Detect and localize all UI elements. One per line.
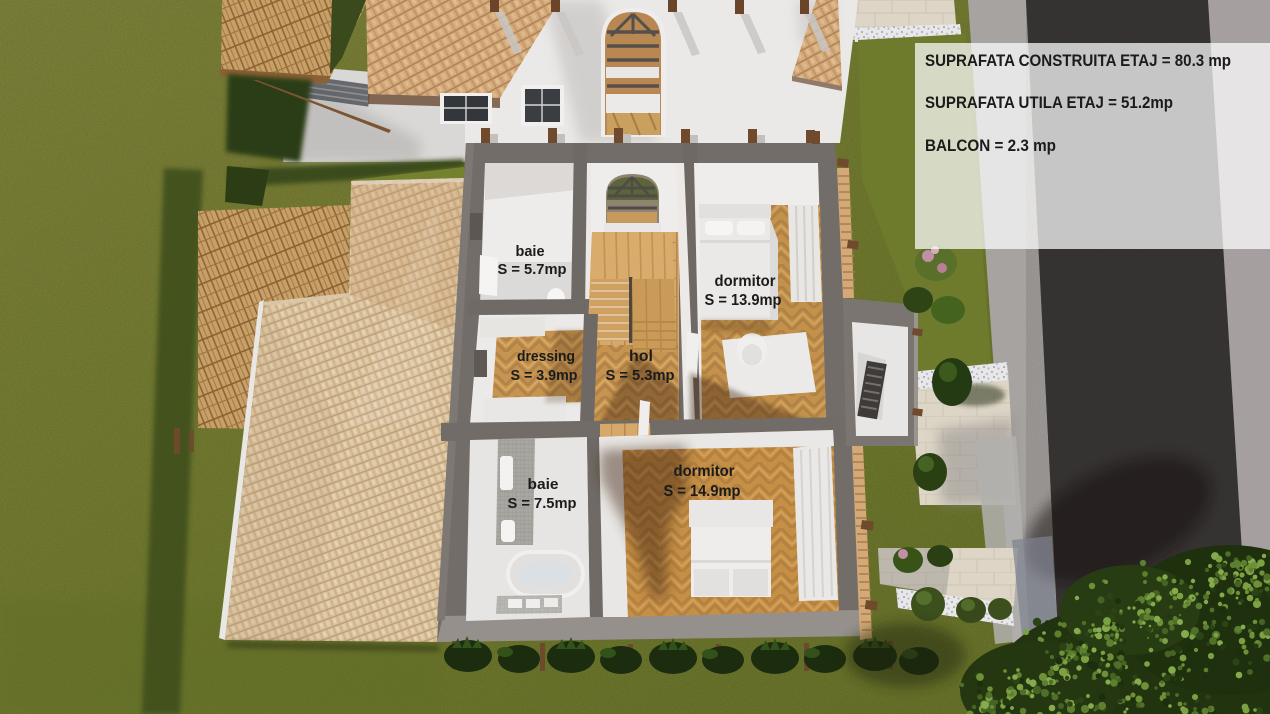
svg-text:baie: baie	[516, 243, 545, 260]
svg-text:S = 5.3mp: S = 5.3mp	[606, 367, 675, 384]
svg-text:S = 14.9mp: S = 14.9mp	[664, 483, 741, 500]
svg-text:dormitor: dormitor	[674, 463, 735, 480]
svg-text:BALCON = 2.3 mp: BALCON = 2.3 mp	[925, 136, 1056, 155]
svg-text:SUPRAFATA CONSTRUITA ETAJ = 80: SUPRAFATA CONSTRUITA ETAJ = 80.3 mp	[925, 51, 1231, 70]
svg-text:hol: hol	[629, 348, 653, 365]
svg-text:SUPRAFATA UTILA ETAJ = 51.2mp: SUPRAFATA UTILA ETAJ = 51.2mp	[925, 93, 1173, 112]
svg-text:dormitor: dormitor	[715, 273, 776, 290]
svg-text:S = 13.9mp: S = 13.9mp	[705, 292, 782, 309]
svg-text:S = 7.5mp: S = 7.5mp	[508, 495, 577, 512]
svg-text:S = 5.7mp: S = 5.7mp	[498, 261, 567, 278]
svg-text:dressing: dressing	[517, 348, 575, 365]
svg-text:baie: baie	[528, 476, 559, 493]
svg-text:S = 3.9mp: S = 3.9mp	[511, 367, 578, 384]
